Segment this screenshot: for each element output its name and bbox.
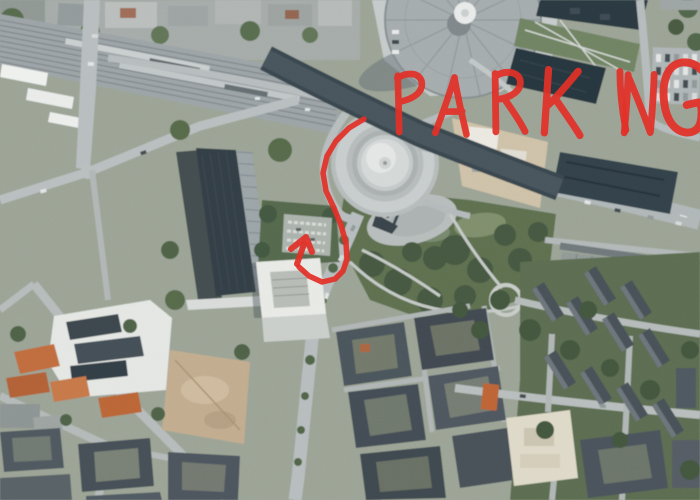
satellite-map-image — [0, 0, 700, 500]
annotated-satellite-screenshot: PARKING — [0, 0, 700, 500]
photo-grain — [0, 0, 700, 500]
